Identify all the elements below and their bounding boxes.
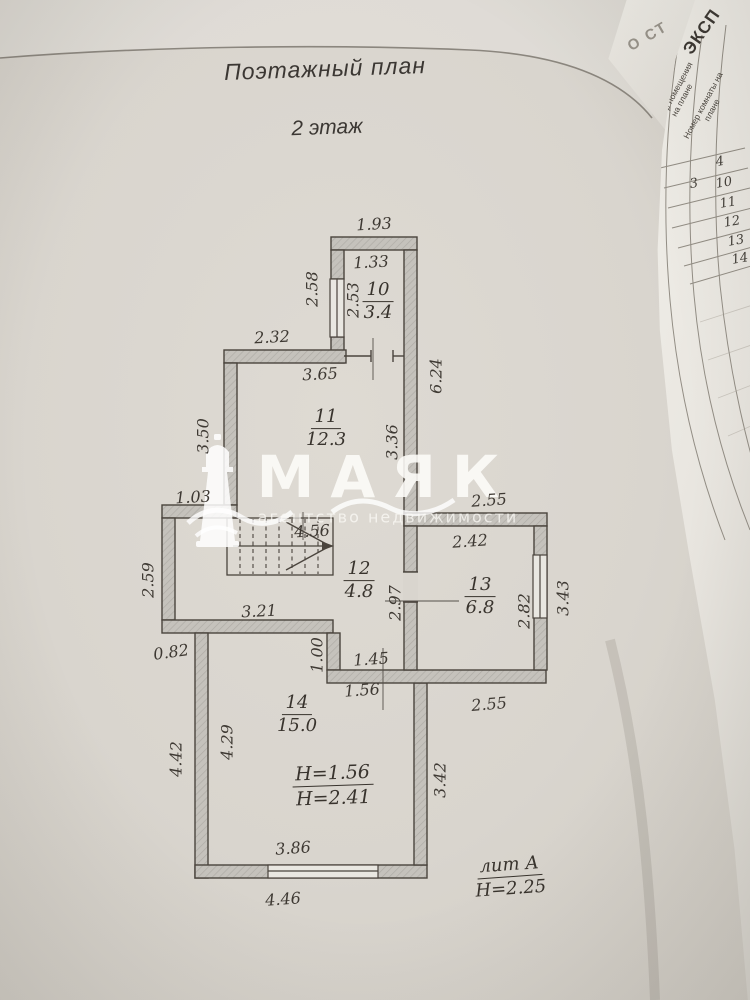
room-number: 11 bbox=[311, 408, 342, 429]
dim-label: 2.42 bbox=[452, 530, 489, 551]
dim-label: 2.82 bbox=[515, 593, 534, 629]
dim-label: 1.00 bbox=[308, 637, 327, 673]
dim-label: 1.93 bbox=[356, 214, 393, 235]
dim-label: 3.42 bbox=[431, 762, 450, 798]
room-area: 3.4 bbox=[363, 304, 394, 323]
height-line2: Н=2.41 bbox=[293, 787, 374, 811]
dim-label: 1.03 bbox=[175, 487, 212, 508]
room-area: 15.0 bbox=[277, 717, 317, 736]
dim-label: 3.86 bbox=[275, 837, 312, 858]
dim-label: 4.29 bbox=[218, 724, 237, 760]
dim-label: 3.43 bbox=[554, 580, 573, 616]
room-number: 10 bbox=[363, 281, 394, 302]
dim-label: 1.56 bbox=[344, 679, 381, 700]
dim-label: 6.24 bbox=[427, 358, 446, 394]
table-cell: 12 bbox=[723, 213, 742, 231]
room-number: 14 bbox=[282, 694, 313, 715]
dim-label: 1.33 bbox=[353, 252, 390, 273]
plan-labels: Поэтажный план 2 этаж 10 3.4 11 12.3 12 … bbox=[0, 0, 750, 1000]
table-cell: 11 bbox=[719, 194, 738, 212]
room-label-12: 12 4.8 bbox=[344, 560, 375, 602]
dim-label: 2.55 bbox=[470, 693, 507, 715]
dim-label: 3.65 bbox=[302, 364, 339, 385]
corner-text-fragment: О СТ bbox=[625, 18, 671, 54]
room-area: 12.3 bbox=[306, 431, 346, 450]
photo-of-floor-plan: МАЯК агентство недвижимости Поэтажный пл… bbox=[0, 0, 750, 1000]
dim-label: 4.46 bbox=[265, 888, 302, 909]
dim-label: 2.58 bbox=[303, 271, 322, 307]
dim-label: 3.50 bbox=[194, 418, 213, 454]
dim-label: 4.42 bbox=[167, 741, 186, 777]
room-label-14: 14 15.0 bbox=[277, 694, 317, 736]
floor-subtitle: 2 этаж bbox=[291, 115, 363, 141]
dim-label: 3.36 bbox=[383, 424, 402, 460]
dim-label: 2.53 bbox=[344, 282, 363, 318]
dim-label: 4.56 bbox=[294, 521, 331, 542]
room-label-10: 10 3.4 bbox=[363, 281, 394, 323]
room-label-11: 11 12.3 bbox=[306, 408, 346, 450]
height-label: Н=1.56 Н=2.41 bbox=[292, 762, 374, 811]
liter-line2: Н=2.25 bbox=[475, 877, 547, 902]
table-cell: 14 bbox=[731, 250, 750, 268]
table-cell: 13 bbox=[727, 232, 746, 250]
dim-label: 2.32 bbox=[254, 327, 291, 348]
plan-title: Поэтажный план bbox=[224, 52, 427, 86]
room-number: 12 bbox=[344, 560, 375, 581]
dim-label: 3.21 bbox=[241, 601, 278, 622]
dim-label: 2.55 bbox=[471, 489, 508, 510]
room-label-13: 13 6.8 bbox=[465, 576, 496, 618]
room-number: 13 bbox=[465, 576, 496, 597]
liter-line1: лит А bbox=[476, 853, 543, 879]
table-cell: 10 bbox=[715, 174, 734, 192]
dim-label: 2.59 bbox=[139, 562, 158, 598]
dim-label: 0.82 bbox=[152, 640, 190, 664]
dim-label: 2.97 bbox=[386, 585, 405, 621]
liter-label: лит А Н=2.25 bbox=[473, 853, 547, 901]
room-area: 4.8 bbox=[344, 583, 375, 602]
dim-label: 1.45 bbox=[353, 648, 390, 669]
room-area: 6.8 bbox=[465, 599, 496, 618]
height-line1: Н=1.56 bbox=[292, 762, 374, 788]
